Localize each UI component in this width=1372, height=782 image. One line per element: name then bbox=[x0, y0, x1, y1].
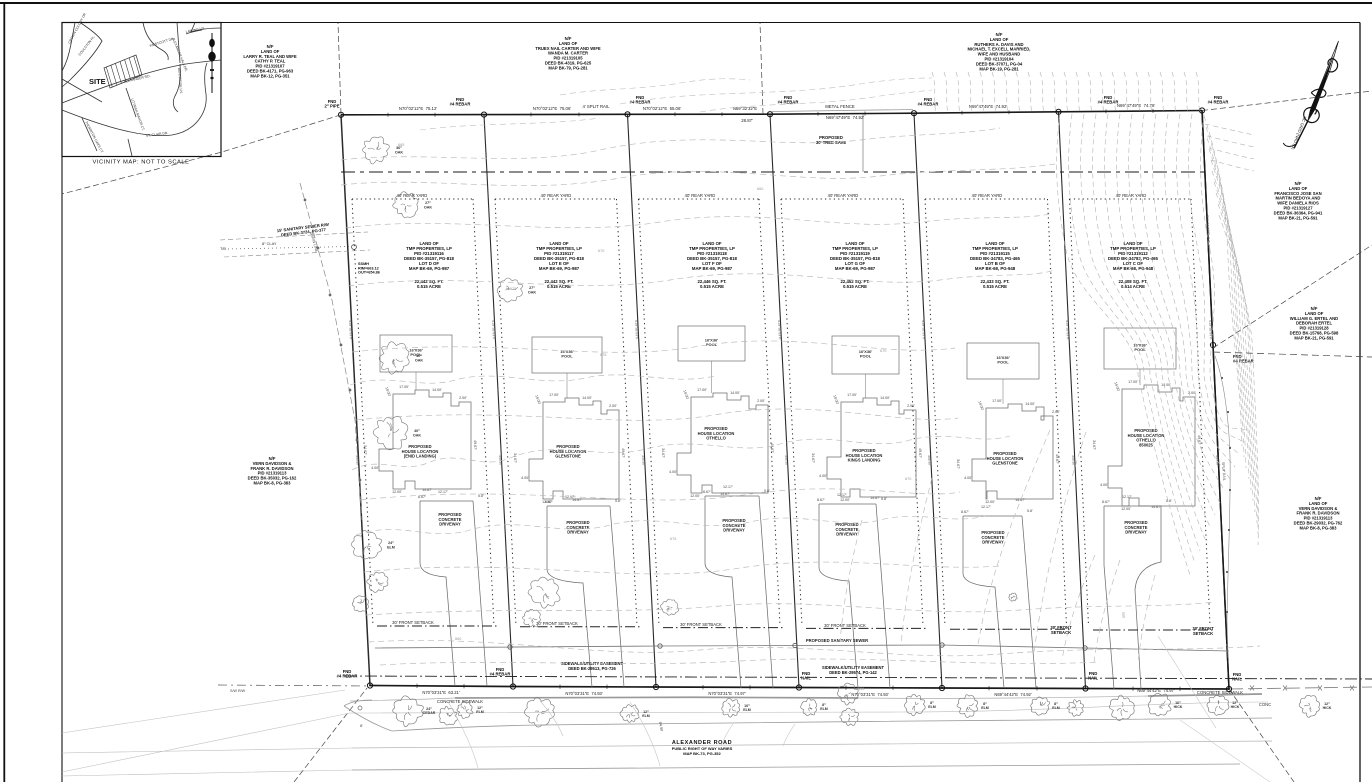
svg-text:14.67′: 14.67′ bbox=[422, 488, 432, 492]
svg-text:675: 675 bbox=[600, 353, 606, 357]
svg-text:N69°44′42″E 74.97′: N69°44′42″E 74.97′ bbox=[1137, 688, 1175, 693]
svg-text:PROPOSED30′ TREE SAVE: PROPOSED30′ TREE SAVE bbox=[816, 135, 846, 145]
svg-text:12.17′: 12.17′ bbox=[438, 490, 448, 494]
svg-text:12.00′: 12.00′ bbox=[690, 494, 700, 498]
svg-text:2.00′: 2.00′ bbox=[609, 404, 617, 408]
svg-text:30′ FRONT SETBACK: 30′ FRONT SETBACK bbox=[824, 623, 866, 628]
svg-text:8″ CLAY: 8″ CLAY bbox=[262, 241, 277, 246]
svg-text:49.67′: 49.67′ bbox=[918, 448, 922, 458]
svg-text:14.00′: 14.00′ bbox=[582, 396, 592, 400]
svg-text:N69°47′49″E 74.92′: N69°47′49″E 74.92′ bbox=[826, 115, 864, 120]
svg-text:SITE: SITE bbox=[89, 77, 106, 86]
svg-text:675: 675 bbox=[510, 287, 516, 291]
svg-text:305.67′: 305.67′ bbox=[1071, 455, 1076, 467]
svg-text:12.17′: 12.17′ bbox=[1122, 495, 1132, 499]
svg-text:34.67′: 34.67′ bbox=[811, 453, 815, 463]
svg-text:PROPOSEDCONCRETEDRIVEWAY: PROPOSEDCONCRETEDRIVEWAY bbox=[835, 522, 858, 537]
svg-text:12.00′: 12.00′ bbox=[840, 498, 850, 502]
svg-text:12.00′: 12.00′ bbox=[392, 490, 402, 494]
svg-text:METAL FENCE: METAL FENCE bbox=[825, 104, 855, 109]
svg-text:N70°02′12″E 75.12′: N70°02′12″E 75.12′ bbox=[399, 106, 437, 111]
svg-text:4.00′: 4.00′ bbox=[521, 476, 529, 480]
svg-text:16′X36′POOL: 16′X36′POOL bbox=[859, 349, 873, 359]
svg-text:12.00′: 12.00′ bbox=[985, 500, 995, 504]
svg-text:LAND OFTMP PROPERTIES, LPPID #: LAND OFTMP PROPERTIES, LPPID #21319117DE… bbox=[534, 241, 585, 271]
svg-text:8.67′: 8.67′ bbox=[961, 510, 969, 514]
svg-text:24″ELM: 24″ELM bbox=[387, 541, 395, 549]
svg-text:675: 675 bbox=[670, 537, 676, 541]
svg-text:LAND OFTMP PROPERTIES, LPPID #: LAND OFTMP PROPERTIES, LPPID #21319112DE… bbox=[1108, 241, 1159, 271]
svg-text:600: 600 bbox=[1121, 612, 1126, 618]
svg-text:34.67′: 34.67′ bbox=[661, 448, 665, 458]
svg-text:305.67′: 305.67′ bbox=[927, 455, 932, 467]
svg-text:N/FVERN DAVIDSON &FRANK R. DAV: N/FVERN DAVIDSON &FRANK R. DAVIDSONPID #… bbox=[248, 456, 297, 486]
svg-text:670: 670 bbox=[598, 249, 604, 253]
svg-text:40′ REAR YARD: 40′ REAR YARD bbox=[828, 193, 859, 198]
svg-text:12.17′: 12.17′ bbox=[981, 505, 991, 509]
svg-text:PROPOSEDCONCRETEDRIVEWAY: PROPOSEDCONCRETEDRIVEWAY bbox=[1124, 520, 1147, 535]
svg-text:30′ FRONT SETBACK: 30′ FRONT SETBACK bbox=[536, 621, 578, 626]
svg-text:14.67′: 14.67′ bbox=[870, 496, 880, 500]
svg-text:LAND OFTMP PROPERTIES, LPPID #: LAND OFTMP PROPERTIES, LPPID #21319115DE… bbox=[970, 241, 1021, 271]
svg-text:665: 665 bbox=[398, 143, 404, 147]
svg-text:N70°02′12″E 55.06′: N70°02′12″E 55.06′ bbox=[643, 106, 681, 111]
svg-text:28.87′: 28.87′ bbox=[741, 118, 753, 123]
svg-text:49.67′: 49.67′ bbox=[1055, 454, 1059, 464]
svg-text:5.8′: 5.8′ bbox=[881, 497, 887, 501]
svg-text:22,433 SQ. FT.0.515 ACRE: 22,433 SQ. FT.0.515 ACRE bbox=[981, 279, 1010, 289]
svg-text:10″ELM: 10″ELM bbox=[743, 704, 751, 712]
svg-text:14.67′: 14.67′ bbox=[720, 492, 730, 496]
svg-text:17.00′: 17.00′ bbox=[549, 393, 559, 397]
svg-text:34.67′: 34.67′ bbox=[513, 453, 517, 463]
svg-text:2.00′: 2.00′ bbox=[1052, 410, 1060, 414]
svg-text:LAND OFTMP PROPERTIES, LPPID #: LAND OFTMP PROPERTIES, LPPID #21319118DE… bbox=[687, 241, 738, 271]
svg-text:14.00′: 14.00′ bbox=[730, 391, 740, 395]
svg-text:14.00′: 14.00′ bbox=[1025, 402, 1035, 406]
svg-text:5.8′: 5.8′ bbox=[478, 494, 484, 498]
svg-text:305.67′: 305.67′ bbox=[784, 455, 789, 467]
svg-text:12″ELM: 12″ELM bbox=[476, 706, 484, 714]
svg-text:655: 655 bbox=[858, 687, 864, 691]
svg-text:CONC: CONC bbox=[1259, 702, 1271, 707]
svg-text:T/B: T/B bbox=[220, 246, 226, 251]
svg-text:40′ REAR YARD: 40′ REAR YARD bbox=[972, 193, 1003, 198]
svg-text:17.00′: 17.00′ bbox=[992, 399, 1002, 403]
svg-text:30′ FRONTSETBACK: 30′ FRONTSETBACK bbox=[1050, 625, 1072, 635]
svg-text:5.8′: 5.8′ bbox=[1027, 509, 1033, 513]
svg-text:14.00′: 14.00′ bbox=[1161, 383, 1171, 387]
svg-text:17.00′: 17.00′ bbox=[847, 393, 857, 397]
svg-text:660: 660 bbox=[757, 187, 763, 191]
svg-text:30′ FRONTSETBACK: 30′ FRONTSETBACK bbox=[1192, 626, 1214, 636]
svg-text:34.67′: 34.67′ bbox=[1092, 440, 1096, 450]
svg-text:49.67′: 49.67′ bbox=[621, 448, 625, 458]
svg-text:N70°02′12″E 75.06′: N70°02′12″E 75.06′ bbox=[533, 106, 571, 111]
svg-text:5.8′: 5.8′ bbox=[1166, 499, 1172, 503]
svg-text:4.00′: 4.00′ bbox=[1100, 483, 1108, 487]
svg-text:LAND OFTMP PROPERTIES, LPPID #: LAND OFTMP PROPERTIES, LPPID #21319119DE… bbox=[830, 241, 881, 271]
svg-text:12.00′: 12.00′ bbox=[1121, 507, 1131, 511]
svg-text:N70°03′31″E 74.93′: N70°03′31″E 74.93′ bbox=[565, 691, 603, 696]
svg-text:4.00′: 4.00′ bbox=[669, 470, 677, 474]
svg-text:SIDEWALK/UTILITY EASEMENTDEED: SIDEWALK/UTILITY EASEMENTDEED BK-29574, … bbox=[822, 665, 885, 675]
svg-text:FNDNAIL: FNDNAIL bbox=[801, 671, 811, 681]
svg-text:PROPOSED SANITARY SEWER: PROPOSED SANITARY SEWER bbox=[806, 638, 868, 643]
svg-text:40′ REAR YARD: 40′ REAR YARD bbox=[397, 193, 428, 198]
svg-text:8.67′: 8.67′ bbox=[817, 498, 825, 502]
svg-text:FNDNAIL: FNDNAIL bbox=[1088, 671, 1098, 681]
svg-text:16′X36′POOL: 16′X36′POOL bbox=[705, 338, 719, 348]
svg-text:PROPOSEDCONCRETEDRIVEWAY: PROPOSEDCONCRETEDRIVEWAY bbox=[981, 530, 1004, 545]
svg-text:12.17′: 12.17′ bbox=[723, 485, 733, 489]
svg-text:14.00′: 14.00′ bbox=[432, 388, 442, 392]
svg-text:22,408 SQ. FT.0.514 ACRE: 22,408 SQ. FT.0.514 ACRE bbox=[1119, 279, 1148, 289]
svg-text:PROPOSEDCONCRETEDRIVEWAY: PROPOSEDCONCRETEDRIVEWAY bbox=[566, 520, 589, 535]
svg-text:2.00′: 2.00′ bbox=[757, 399, 765, 403]
svg-text:40′ REAR YARD: 40′ REAR YARD bbox=[685, 193, 716, 198]
svg-text:34.67′: 34.67′ bbox=[956, 459, 960, 469]
svg-text:22,442 SQ. FT.0.515 ACRE: 22,442 SQ. FT.0.515 ACRE bbox=[545, 279, 574, 289]
svg-text:8.67′: 8.67′ bbox=[418, 495, 426, 499]
svg-text:305.67′: 305.67′ bbox=[641, 455, 646, 467]
svg-text:FNDNAIL: FNDNAIL bbox=[1232, 672, 1242, 682]
svg-text:N69°47′49″E 74.76′: N69°47′49″E 74.76′ bbox=[1117, 103, 1155, 108]
svg-text:14.67′: 14.67′ bbox=[1151, 505, 1161, 509]
svg-text:4.00′: 4.00′ bbox=[371, 466, 379, 470]
svg-text:8.67′: 8.67′ bbox=[1102, 500, 1110, 504]
svg-text:4′ SPLIT RAIL: 4′ SPLIT RAIL bbox=[583, 104, 611, 109]
svg-text:8.67′: 8.67′ bbox=[545, 500, 553, 504]
svg-text:N69°44′42″E 74.92′: N69°44′42″E 74.92′ bbox=[994, 692, 1032, 697]
svg-text:30′ FRONT SETBACK: 30′ FRONT SETBACK bbox=[680, 622, 722, 627]
svg-text:SIDEWALK/UTILITY EASEMENTDEED: SIDEWALK/UTILITY EASEMENTDEED BK-29513, … bbox=[561, 661, 624, 671]
svg-text:12″ELM: 12″ELM bbox=[642, 710, 650, 718]
svg-text:2.00′: 2.00′ bbox=[459, 396, 467, 400]
svg-text:17.00′: 17.00′ bbox=[399, 385, 409, 389]
svg-text:40′ REAR YARD: 40′ REAR YARD bbox=[541, 193, 572, 198]
svg-text:670: 670 bbox=[905, 477, 911, 481]
svg-text:S/W R/W: S/W R/W bbox=[230, 689, 246, 693]
svg-text:34.67′: 34.67′ bbox=[363, 445, 367, 455]
svg-text:2.00′: 2.00′ bbox=[907, 404, 915, 408]
svg-text:660: 660 bbox=[455, 637, 461, 641]
svg-text:14.67′: 14.67′ bbox=[1015, 498, 1025, 502]
svg-text:LAND OFTMP PROPERTIES, LPPID #: LAND OFTMP PROPERTIES, LPPID #21319116DE… bbox=[404, 241, 455, 271]
svg-text:8′: 8′ bbox=[360, 724, 363, 728]
svg-text:670: 670 bbox=[880, 349, 886, 353]
svg-text:12.17′: 12.17′ bbox=[837, 493, 847, 497]
svg-text:4.00′: 4.00′ bbox=[819, 474, 827, 478]
svg-text:305.67′: 305.67′ bbox=[1215, 455, 1220, 467]
svg-text:N70°03′31″E 74.97′: N70°03′31″E 74.97′ bbox=[708, 691, 746, 696]
svg-text:CONCRETE SIDEWALK: CONCRETE SIDEWALK bbox=[1197, 690, 1243, 695]
svg-text:CONCRETE SIDEWALK: CONCRETE SIDEWALK bbox=[437, 699, 483, 704]
svg-text:30′ FRONT SETBACK: 30′ FRONT SETBACK bbox=[392, 620, 434, 625]
svg-text:22,452 SQ. FT.0.515 ACRE: 22,452 SQ. FT.0.515 ACRE bbox=[841, 279, 870, 289]
svg-text:22,446 SQ. FT.0.515 ACRE: 22,446 SQ. FT.0.515 ACRE bbox=[698, 279, 727, 289]
svg-text:N69°47′49″E 74.92′: N69°47′49″E 74.92′ bbox=[969, 104, 1007, 109]
svg-text:N70°03′31″E 63.21′: N70°03′31″E 63.21′ bbox=[422, 690, 460, 695]
svg-text:49.67′: 49.67′ bbox=[473, 440, 477, 450]
svg-text:17.00′: 17.00′ bbox=[697, 388, 707, 392]
svg-text:8.67′: 8.67′ bbox=[703, 490, 711, 494]
svg-text:16′X36′POOL: 16′X36′POOL bbox=[996, 355, 1010, 365]
svg-text:PROPOSEDCONCRETEDRIVEWAY: PROPOSEDCONCRETEDRIVEWAY bbox=[438, 512, 461, 527]
svg-text:14.00′: 14.00′ bbox=[880, 396, 890, 400]
svg-text:4.00′: 4.00′ bbox=[964, 476, 972, 480]
svg-text:5.8′: 5.8′ bbox=[615, 499, 621, 503]
svg-text:49.67′: 49.67′ bbox=[770, 443, 774, 453]
svg-text:17.00′: 17.00′ bbox=[1128, 380, 1138, 384]
